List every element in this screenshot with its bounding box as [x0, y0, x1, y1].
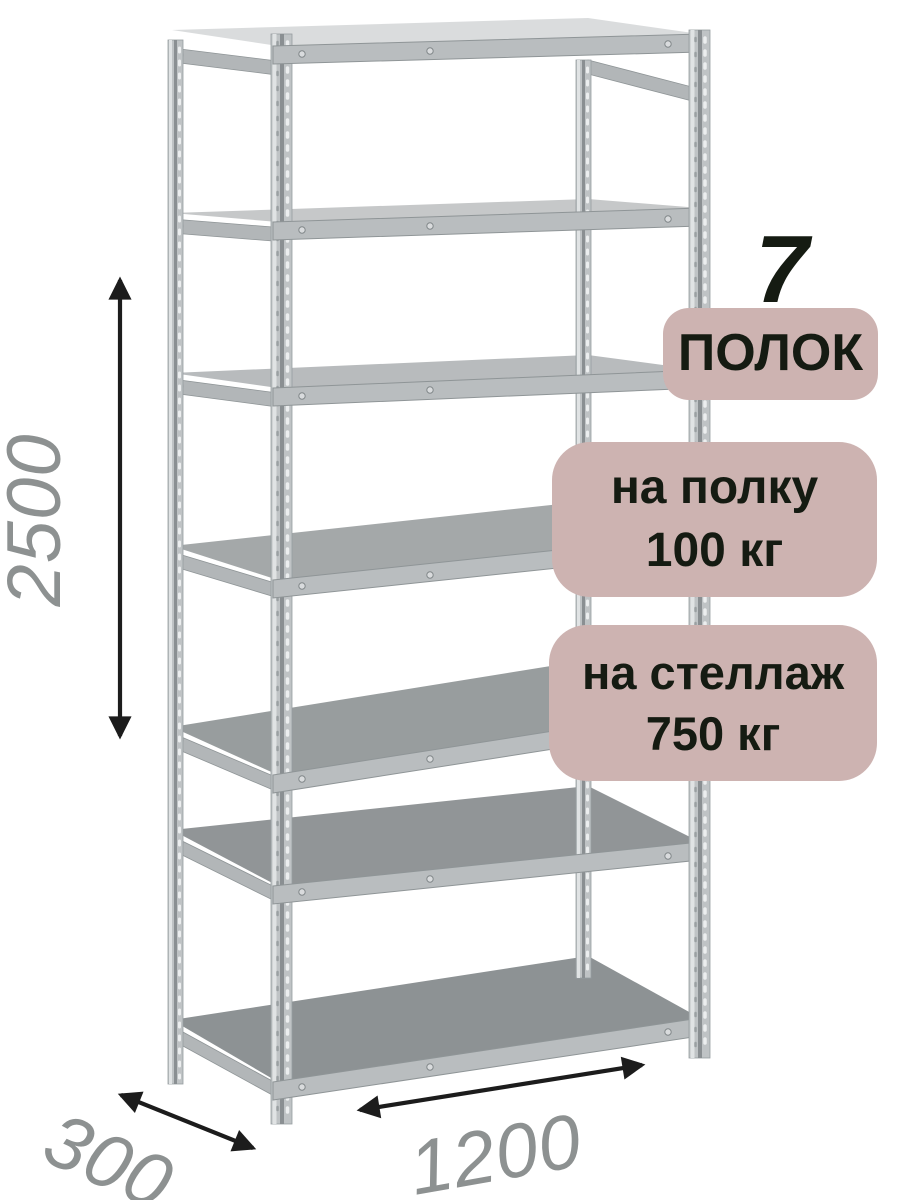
- shelf-count-number: 7: [742, 222, 822, 318]
- rack-illustration: 2500 300 1200: [0, 0, 900, 1200]
- height-dimension-label: 2500: [0, 433, 77, 607]
- rear-left-post: [168, 40, 183, 1084]
- shelf-2-left-rail: [172, 219, 285, 242]
- shelf-count-badge: ПОЛОК: [663, 308, 878, 400]
- product-image: 2500 300 1200 7 ПОЛОК на полку 100 кг на…: [0, 0, 900, 1200]
- per-shelf-load-line2: 100 кг: [646, 520, 783, 582]
- height-dimension: 2500: [0, 280, 120, 736]
- width-dimension: 1200: [360, 1065, 642, 1200]
- per-rack-load-line1: на стеллаж: [582, 642, 844, 703]
- shelf-count-label: ПОЛОК: [678, 320, 863, 388]
- shelf-1-right-rail: [588, 60, 696, 102]
- per-shelf-load-line1: на полку: [611, 457, 818, 519]
- per-shelf-load-badge: на полку 100 кг: [552, 442, 877, 597]
- depth-dimension: 300: [32, 1095, 253, 1200]
- per-rack-load-line2: 750 кг: [646, 703, 781, 764]
- per-rack-load-badge: на стеллаж 750 кг: [549, 625, 877, 781]
- shelf-1-left-rail: [172, 48, 285, 76]
- width-dimension-label: 1200: [403, 1098, 588, 1200]
